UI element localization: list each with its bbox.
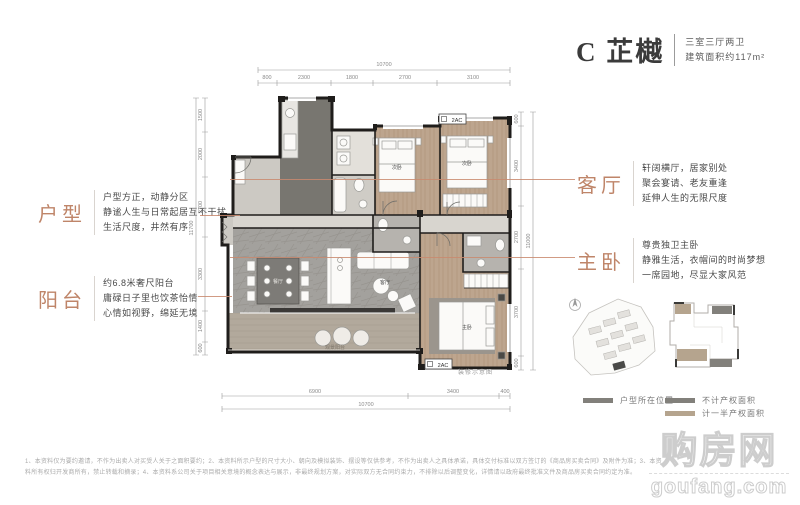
watermark-domain: goufang.com bbox=[641, 476, 797, 498]
anno-line: 静雅生活，衣帽间的时尚梦想 bbox=[642, 253, 766, 268]
anno-zhuwo: 主卧 尊贵独卫主卧 静雅生活，衣帽间的时尚梦想 一席园地，尽显大家风范 bbox=[577, 238, 766, 283]
legend-half: 计一半产权面积 bbox=[665, 408, 765, 419]
dim: 2700 bbox=[399, 75, 411, 81]
title-divider bbox=[674, 34, 675, 66]
dim: 600 bbox=[514, 358, 520, 367]
dim: 2700 bbox=[198, 201, 204, 213]
anno-keting: 客厅 轩阔横厅，居家别处 聚会宴请、老友重逢 延伸人生的无限尺度 bbox=[577, 161, 728, 206]
dim: 1500 bbox=[198, 109, 204, 121]
dim: 1400 bbox=[198, 320, 204, 332]
watermark-separator bbox=[649, 473, 789, 474]
dim-left-total: 11700 bbox=[189, 221, 195, 236]
unit-spec: 三室三厅两卫 bbox=[685, 35, 765, 50]
dim: 2300 bbox=[298, 75, 310, 81]
dim: 3100 bbox=[467, 75, 479, 81]
dim: 3400 bbox=[514, 160, 520, 172]
watermark: 购房网 goufang.com bbox=[641, 430, 797, 498]
anno-zhuwo-label: 主卧 bbox=[577, 246, 625, 275]
dim: 1800 bbox=[346, 75, 358, 81]
half-area-top bbox=[675, 304, 691, 314]
anno-zhuwo-text: 尊贵独卫主卧 静雅生活，衣帽间的时尚梦想 一席园地，尽显大家风范 bbox=[642, 238, 766, 283]
dim: 3700 bbox=[514, 306, 520, 318]
anno-line: 庸碌日子里也饮茶怡情 bbox=[103, 291, 198, 306]
anno-keting-label: 客厅 bbox=[577, 169, 625, 198]
dim: 6900 bbox=[309, 389, 321, 395]
dim: 2000 bbox=[198, 148, 204, 160]
anno-keting-text: 轩阔横厅，居家别处 聚会宴请、老友重逢 延伸人生的无限尺度 bbox=[642, 161, 728, 206]
room-label-balcony: 观景阳台 bbox=[325, 344, 345, 351]
dim: 600 bbox=[198, 343, 204, 352]
anno-yangtai-text: 约6.8米奢尺阳台 庸碌日子里也饮茶怡情 心情如视野，绵延无境 bbox=[103, 276, 198, 321]
excluded-area-bottom bbox=[710, 359, 732, 367]
connector-keting bbox=[230, 179, 575, 180]
legend-excluded-swatch bbox=[665, 398, 695, 403]
anno-line: 心情如视野，绵延无境 bbox=[103, 306, 198, 321]
half-area-balcony bbox=[677, 349, 707, 361]
connector-yangtai bbox=[198, 296, 232, 297]
legend-excluded-label: 不计产权面积 bbox=[702, 395, 756, 406]
dim: 2700 bbox=[514, 231, 520, 243]
legend-location: 户型所在位置 bbox=[583, 395, 674, 406]
floorplan-poster: C 芷樾 三室三厅两卫 建筑面积约117m² 户型 户型方正，动静分区 静谧人生… bbox=[0, 0, 800, 505]
floorplan-drawing: 2AC 2AC 餐厅 客厅 次卧 次卧 主卧 观景阳台 bbox=[185, 52, 560, 425]
legend-location-swatch bbox=[583, 398, 613, 403]
plan-caption: 装修示意图 bbox=[458, 367, 493, 376]
dim: 800 bbox=[262, 75, 271, 81]
anno-line: 轩阔横厅，居家别处 bbox=[642, 161, 728, 176]
anno-yangtai: 阳台 约6.8米奢尺阳台 庸碌日子里也饮茶怡情 心情如视野，绵延无境 bbox=[38, 276, 198, 321]
legend-half-swatch bbox=[665, 411, 695, 416]
room-label-master: 主卧 bbox=[462, 324, 472, 331]
title-subtext: 三室三厅两卫 建筑面积约117m² bbox=[685, 35, 765, 65]
dim: 600 bbox=[514, 114, 520, 123]
room-label-bedroom2: 次卧 bbox=[392, 164, 402, 171]
anno-yangtai-label: 阳台 bbox=[38, 284, 86, 313]
anno-line: 延伸人生的无限尺度 bbox=[642, 191, 728, 206]
anno-line: 聚会宴请、老友重逢 bbox=[642, 176, 728, 191]
ac-label-bottom: 2AC bbox=[438, 363, 449, 369]
unit-area: 建筑面积约117m² bbox=[685, 50, 765, 65]
anno-huxing-label: 户型 bbox=[38, 198, 86, 227]
anno-line: 一席园地，尽显大家风范 bbox=[642, 268, 766, 283]
dim: 3400 bbox=[447, 389, 459, 395]
title-block: C 芷樾 三室三厅两卫 建筑面积约117m² bbox=[576, 30, 765, 69]
dim-top-total: 10700 bbox=[376, 62, 391, 68]
room-label-living: 客厅 bbox=[380, 279, 390, 286]
room-label-dining: 餐厅 bbox=[273, 278, 283, 285]
watermark-name: 购房网 bbox=[641, 430, 797, 472]
anno-line: 尊贵独卫主卧 bbox=[642, 238, 766, 253]
legend-half-label: 计一半产权面积 bbox=[702, 408, 765, 419]
anno-line: 约6.8米奢尺阳台 bbox=[103, 276, 198, 291]
anno-divider bbox=[633, 161, 634, 206]
room-label-bedroom3: 次卧 bbox=[462, 160, 472, 167]
anno-divider bbox=[94, 276, 95, 321]
dim-bottom-total: 10700 bbox=[358, 402, 373, 408]
dim-right-total: 11000 bbox=[526, 234, 532, 249]
unit-name: C 芷樾 bbox=[576, 30, 664, 69]
area-key-plan bbox=[660, 293, 748, 381]
anno-divider bbox=[633, 238, 634, 283]
anno-divider bbox=[94, 190, 95, 235]
site-key-plan bbox=[563, 293, 663, 388]
north-arrow-needle bbox=[573, 298, 578, 308]
connector-zhuwo bbox=[230, 257, 575, 258]
dim: 3300 bbox=[198, 268, 204, 280]
excluded-area-top bbox=[712, 306, 732, 314]
connector-huxing bbox=[200, 215, 240, 216]
legend-excluded: 不计产权面积 bbox=[665, 395, 756, 406]
dim: 400 bbox=[500, 389, 509, 395]
ac-label-top: 2AC bbox=[452, 118, 463, 124]
